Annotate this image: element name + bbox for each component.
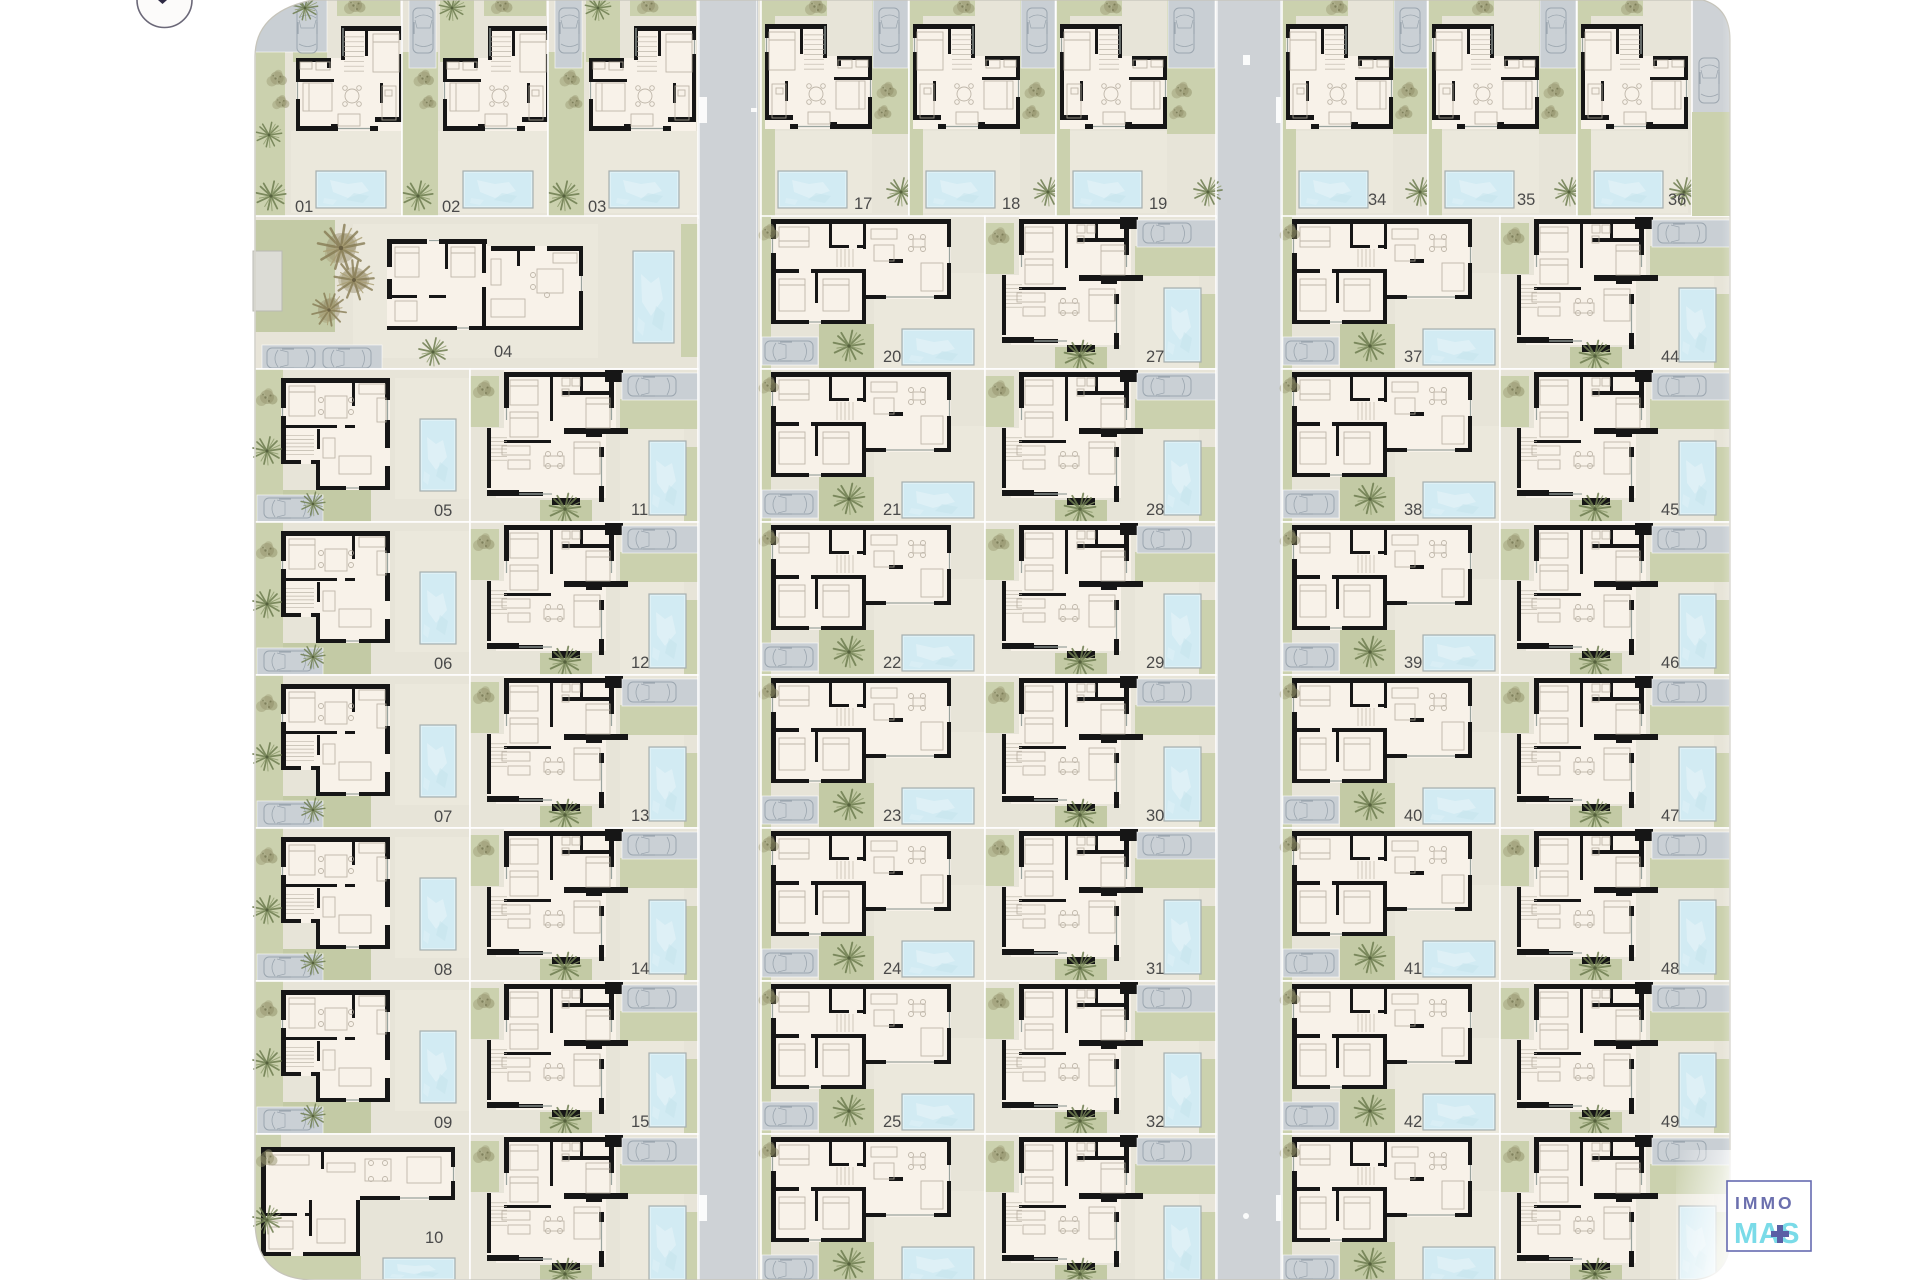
svg-text:MAS: MAS bbox=[1734, 1218, 1800, 1250]
svg-text:41: 41 bbox=[1404, 960, 1422, 978]
svg-text:17: 17 bbox=[854, 195, 872, 213]
svg-text:10: 10 bbox=[425, 1229, 443, 1247]
svg-text:04: 04 bbox=[494, 343, 512, 361]
svg-text:01: 01 bbox=[295, 198, 313, 216]
svg-text:35: 35 bbox=[1517, 191, 1535, 209]
svg-text:15: 15 bbox=[631, 1113, 649, 1131]
svg-text:11: 11 bbox=[631, 501, 648, 519]
svg-text:14: 14 bbox=[631, 960, 649, 978]
svg-text:32: 32 bbox=[1146, 1113, 1164, 1131]
svg-text:48: 48 bbox=[1661, 960, 1679, 978]
svg-text:34: 34 bbox=[1368, 191, 1386, 209]
svg-text:07: 07 bbox=[434, 808, 452, 826]
svg-text:31: 31 bbox=[1146, 960, 1164, 978]
svg-text:40: 40 bbox=[1404, 807, 1422, 825]
svg-text:29: 29 bbox=[1146, 654, 1164, 672]
svg-text:28: 28 bbox=[1146, 501, 1164, 519]
svg-text:36: 36 bbox=[1668, 191, 1686, 209]
svg-text:27: 27 bbox=[1146, 348, 1164, 366]
svg-text:21: 21 bbox=[883, 501, 901, 519]
svg-text:02: 02 bbox=[442, 198, 460, 216]
svg-text:05: 05 bbox=[434, 502, 452, 520]
svg-text:25: 25 bbox=[883, 1113, 901, 1131]
svg-text:19: 19 bbox=[1149, 195, 1167, 213]
svg-text:45: 45 bbox=[1661, 501, 1679, 519]
svg-text:23: 23 bbox=[883, 807, 901, 825]
svg-text:42: 42 bbox=[1404, 1113, 1422, 1131]
svg-text:20: 20 bbox=[883, 348, 901, 366]
svg-text:44: 44 bbox=[1661, 348, 1679, 366]
svg-text:18: 18 bbox=[1002, 195, 1020, 213]
svg-text:39: 39 bbox=[1404, 654, 1422, 672]
svg-text:24: 24 bbox=[883, 960, 901, 978]
svg-text:37: 37 bbox=[1404, 348, 1422, 366]
svg-text:30: 30 bbox=[1146, 807, 1164, 825]
svg-text:03: 03 bbox=[588, 198, 606, 216]
svg-text:IMMO: IMMO bbox=[1735, 1193, 1795, 1213]
svg-text:09: 09 bbox=[434, 1114, 452, 1132]
svg-text:46: 46 bbox=[1661, 654, 1679, 672]
svg-text:06: 06 bbox=[434, 655, 452, 673]
svg-text:49: 49 bbox=[1661, 1113, 1679, 1131]
svg-text:47: 47 bbox=[1661, 807, 1679, 825]
svg-text:38: 38 bbox=[1404, 501, 1422, 519]
svg-text:08: 08 bbox=[434, 961, 452, 979]
svg-text:13: 13 bbox=[631, 807, 649, 825]
svg-text:22: 22 bbox=[883, 654, 901, 672]
svg-text:12: 12 bbox=[631, 654, 649, 672]
